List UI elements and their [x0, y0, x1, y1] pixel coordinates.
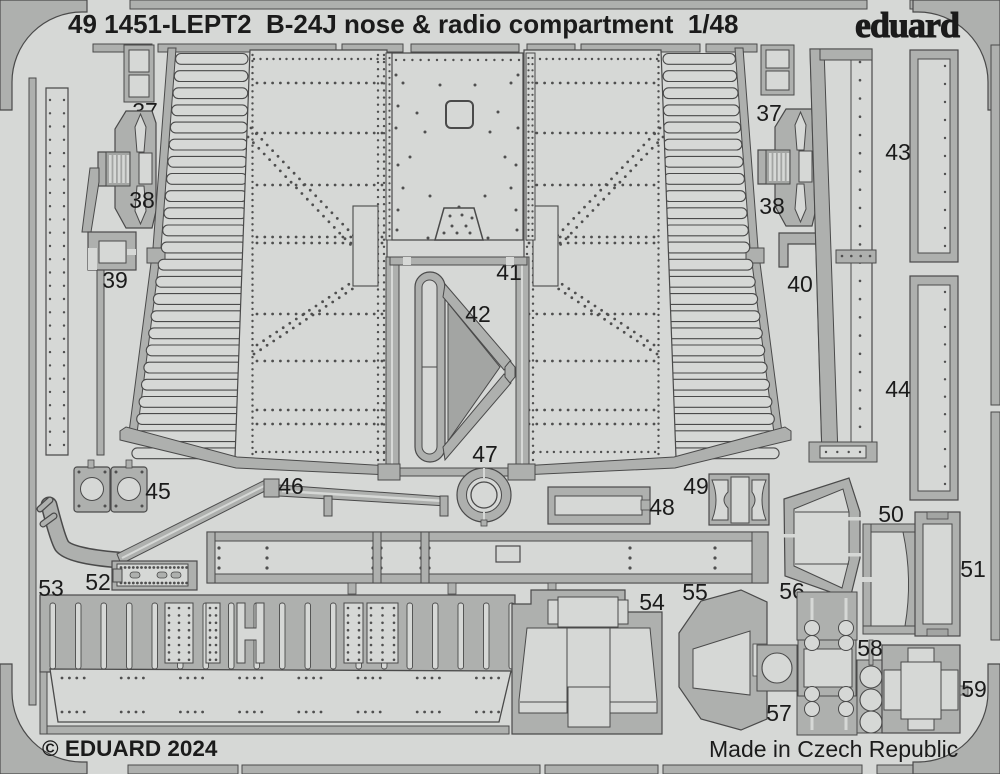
svg-text:38: 38	[129, 187, 155, 213]
svg-text:Made in Czech Republic: Made in Czech Republic	[709, 736, 958, 762]
svg-text:49: 49	[683, 473, 709, 499]
svg-text:46: 46	[278, 473, 304, 499]
svg-text:52: 52	[85, 569, 111, 595]
svg-text:58: 58	[857, 635, 883, 661]
svg-text:40: 40	[787, 271, 813, 297]
svg-text:51: 51	[960, 556, 986, 582]
svg-text:47: 47	[472, 441, 498, 467]
svg-text:57: 57	[766, 700, 792, 726]
svg-text:48: 48	[649, 494, 675, 520]
svg-text:42: 42	[465, 301, 491, 327]
svg-text:54: 54	[639, 589, 665, 615]
svg-text:39: 39	[102, 267, 128, 293]
svg-text:59: 59	[961, 676, 987, 702]
svg-text:44: 44	[885, 376, 911, 402]
svg-text:43: 43	[885, 139, 911, 165]
svg-text:45: 45	[145, 478, 171, 504]
svg-text:© EDUARD 2024: © EDUARD 2024	[42, 736, 218, 761]
svg-text:50: 50	[878, 501, 904, 527]
svg-text:49 1451-LEPT2 B-24J nose & ra: 49 1451-LEPT2 B-24J nose & radio compart…	[68, 9, 738, 39]
svg-text:eduard: eduard	[855, 5, 960, 45]
svg-text:53: 53	[38, 575, 64, 601]
svg-text:38: 38	[759, 193, 785, 219]
